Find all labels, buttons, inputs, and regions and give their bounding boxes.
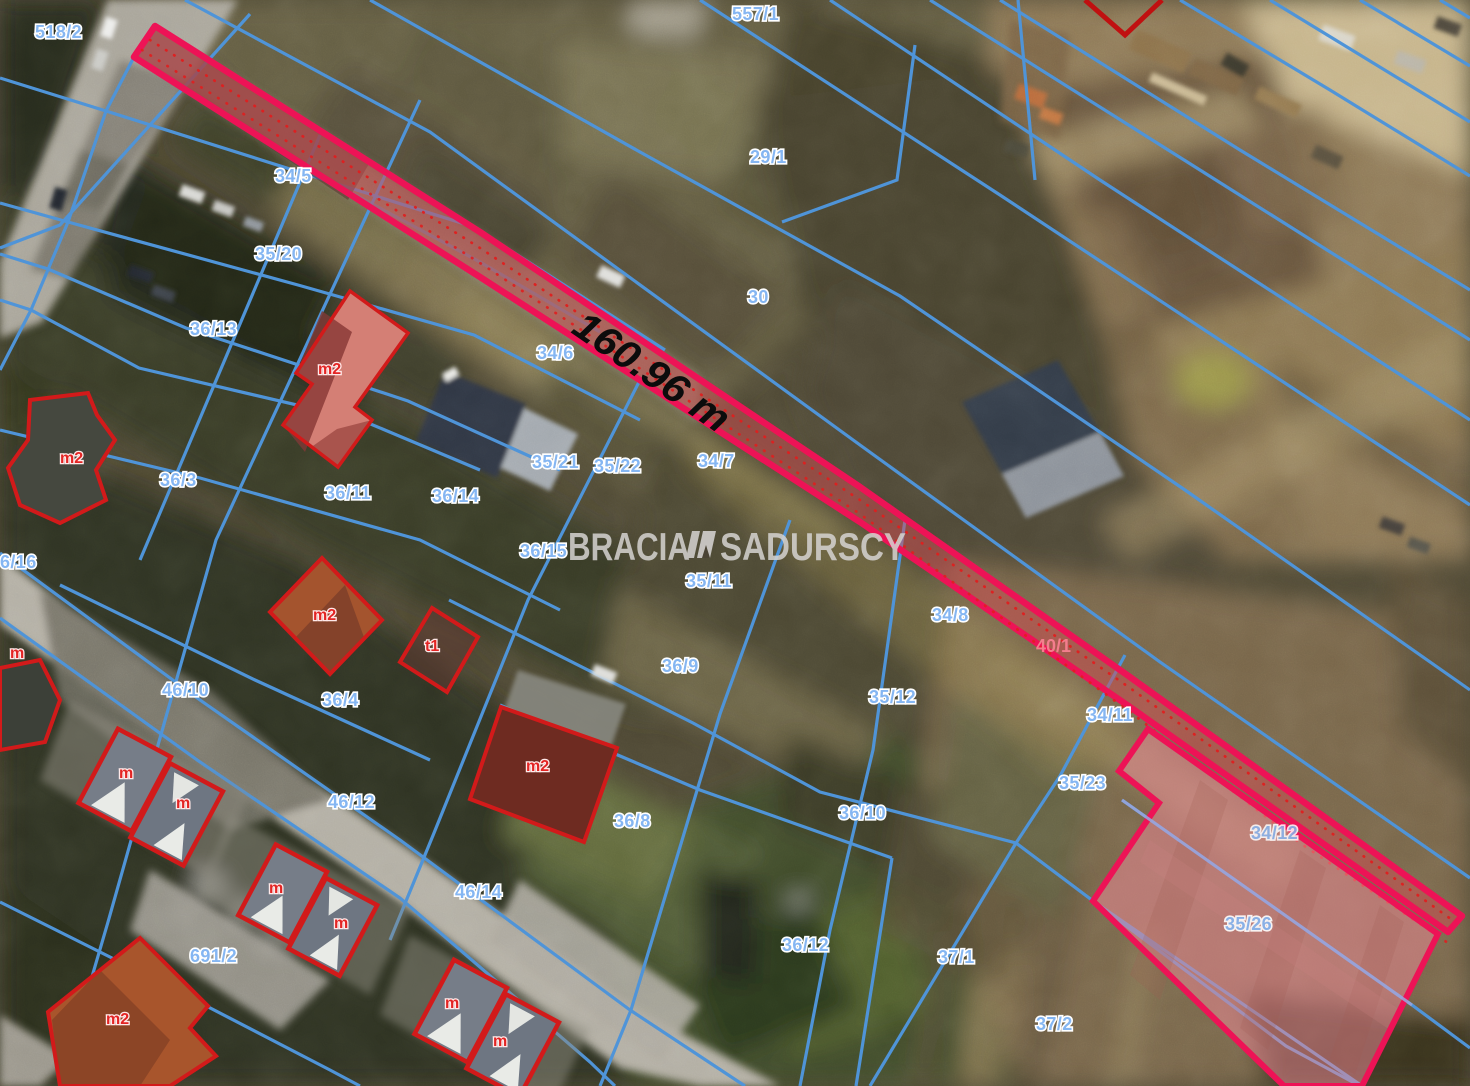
svg-text:36/9: 36/9 <box>662 656 699 676</box>
svg-text:BRACIA: BRACIA <box>568 526 690 569</box>
svg-text:46/10: 46/10 <box>162 680 209 700</box>
svg-text:518/2: 518/2 <box>35 22 82 42</box>
svg-text:m: m <box>269 880 283 897</box>
svg-text:m: m <box>10 645 24 662</box>
svg-text:35/20: 35/20 <box>255 244 302 264</box>
svg-text:691/2: 691/2 <box>190 946 237 966</box>
svg-text:40/1: 40/1 <box>1036 636 1071 656</box>
svg-text:36/8: 36/8 <box>614 811 651 831</box>
svg-text:m2: m2 <box>526 758 549 775</box>
svg-text:37/2: 37/2 <box>1036 1014 1073 1034</box>
svg-text:34/12: 34/12 <box>1251 823 1298 843</box>
svg-text:m2: m2 <box>313 607 336 624</box>
svg-text:m: m <box>176 795 190 812</box>
svg-text:36/4: 36/4 <box>322 690 359 710</box>
svg-text:35/11: 35/11 <box>686 571 732 591</box>
svg-text:34/7: 34/7 <box>698 451 735 471</box>
svg-text:34/8: 34/8 <box>932 605 969 625</box>
svg-text:35/23: 35/23 <box>1059 773 1106 793</box>
svg-text:36/10: 36/10 <box>839 803 886 823</box>
svg-text:35/26: 35/26 <box>1225 914 1272 934</box>
svg-text:m2: m2 <box>60 450 83 467</box>
svg-text:m: m <box>493 1033 507 1050</box>
svg-text:34/6: 34/6 <box>537 343 574 363</box>
svg-text:SADURSCY: SADURSCY <box>720 526 906 569</box>
svg-text:46/14: 46/14 <box>455 882 502 902</box>
svg-text:37/1: 37/1 <box>938 947 975 967</box>
svg-text:29/1: 29/1 <box>750 147 787 167</box>
svg-text:35/22: 35/22 <box>594 456 641 476</box>
svg-text:36/12: 36/12 <box>782 935 829 955</box>
svg-text:36/15: 36/15 <box>520 541 567 561</box>
svg-text:36/14: 36/14 <box>432 486 479 506</box>
svg-text:m2: m2 <box>106 1011 129 1028</box>
svg-text:6/16: 6/16 <box>0 552 37 572</box>
svg-text:35/21: 35/21 <box>532 452 579 472</box>
svg-text:34/5: 34/5 <box>275 166 312 186</box>
svg-text:35/12: 35/12 <box>869 687 916 707</box>
svg-text:t1: t1 <box>425 638 439 655</box>
svg-text:36/13: 36/13 <box>190 319 237 339</box>
svg-text:m: m <box>334 915 348 932</box>
svg-text:557/1: 557/1 <box>732 4 779 24</box>
svg-text:30: 30 <box>748 287 769 307</box>
svg-text:m2: m2 <box>318 361 341 378</box>
svg-text:m: m <box>119 765 133 782</box>
svg-text:34/11: 34/11 <box>1087 705 1133 725</box>
svg-text:36/11: 36/11 <box>325 483 371 503</box>
svg-text:36/3: 36/3 <box>160 470 197 490</box>
svg-text:m: m <box>445 995 459 1012</box>
svg-text:46/12: 46/12 <box>328 792 375 812</box>
